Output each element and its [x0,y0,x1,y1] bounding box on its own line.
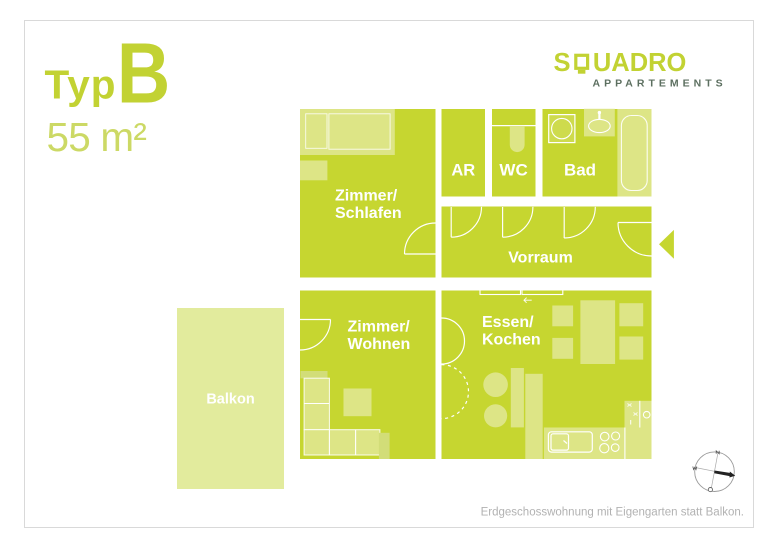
svg-text:AR: AR [451,161,475,179]
svg-text:Zimmer/Schlafen: Zimmer/Schlafen [335,188,402,223]
svg-text:UADRO: UADRO [593,49,687,77]
svg-text:Essen/Kochen: Essen/Kochen [482,314,541,349]
svg-text:Bad: Bad [564,160,596,179]
svg-text:Balkon: Balkon [206,392,254,408]
svg-text:APPARTEMENTS: APPARTEMENTS [593,78,727,90]
svg-text:Vorraum: Vorraum [508,249,573,266]
svg-text:Erdgeschosswohnung mit Eigenga: Erdgeschosswohnung mit Eigengarten statt… [481,507,744,519]
svg-text:55 m²: 55 m² [47,114,147,160]
svg-text:Typ: Typ [45,62,117,108]
svg-text:B: B [117,26,170,121]
svg-text:WC: WC [499,160,527,179]
svg-text:Zimmer/Wohnen: Zimmer/Wohnen [348,319,411,354]
svg-text:S: S [554,49,571,77]
